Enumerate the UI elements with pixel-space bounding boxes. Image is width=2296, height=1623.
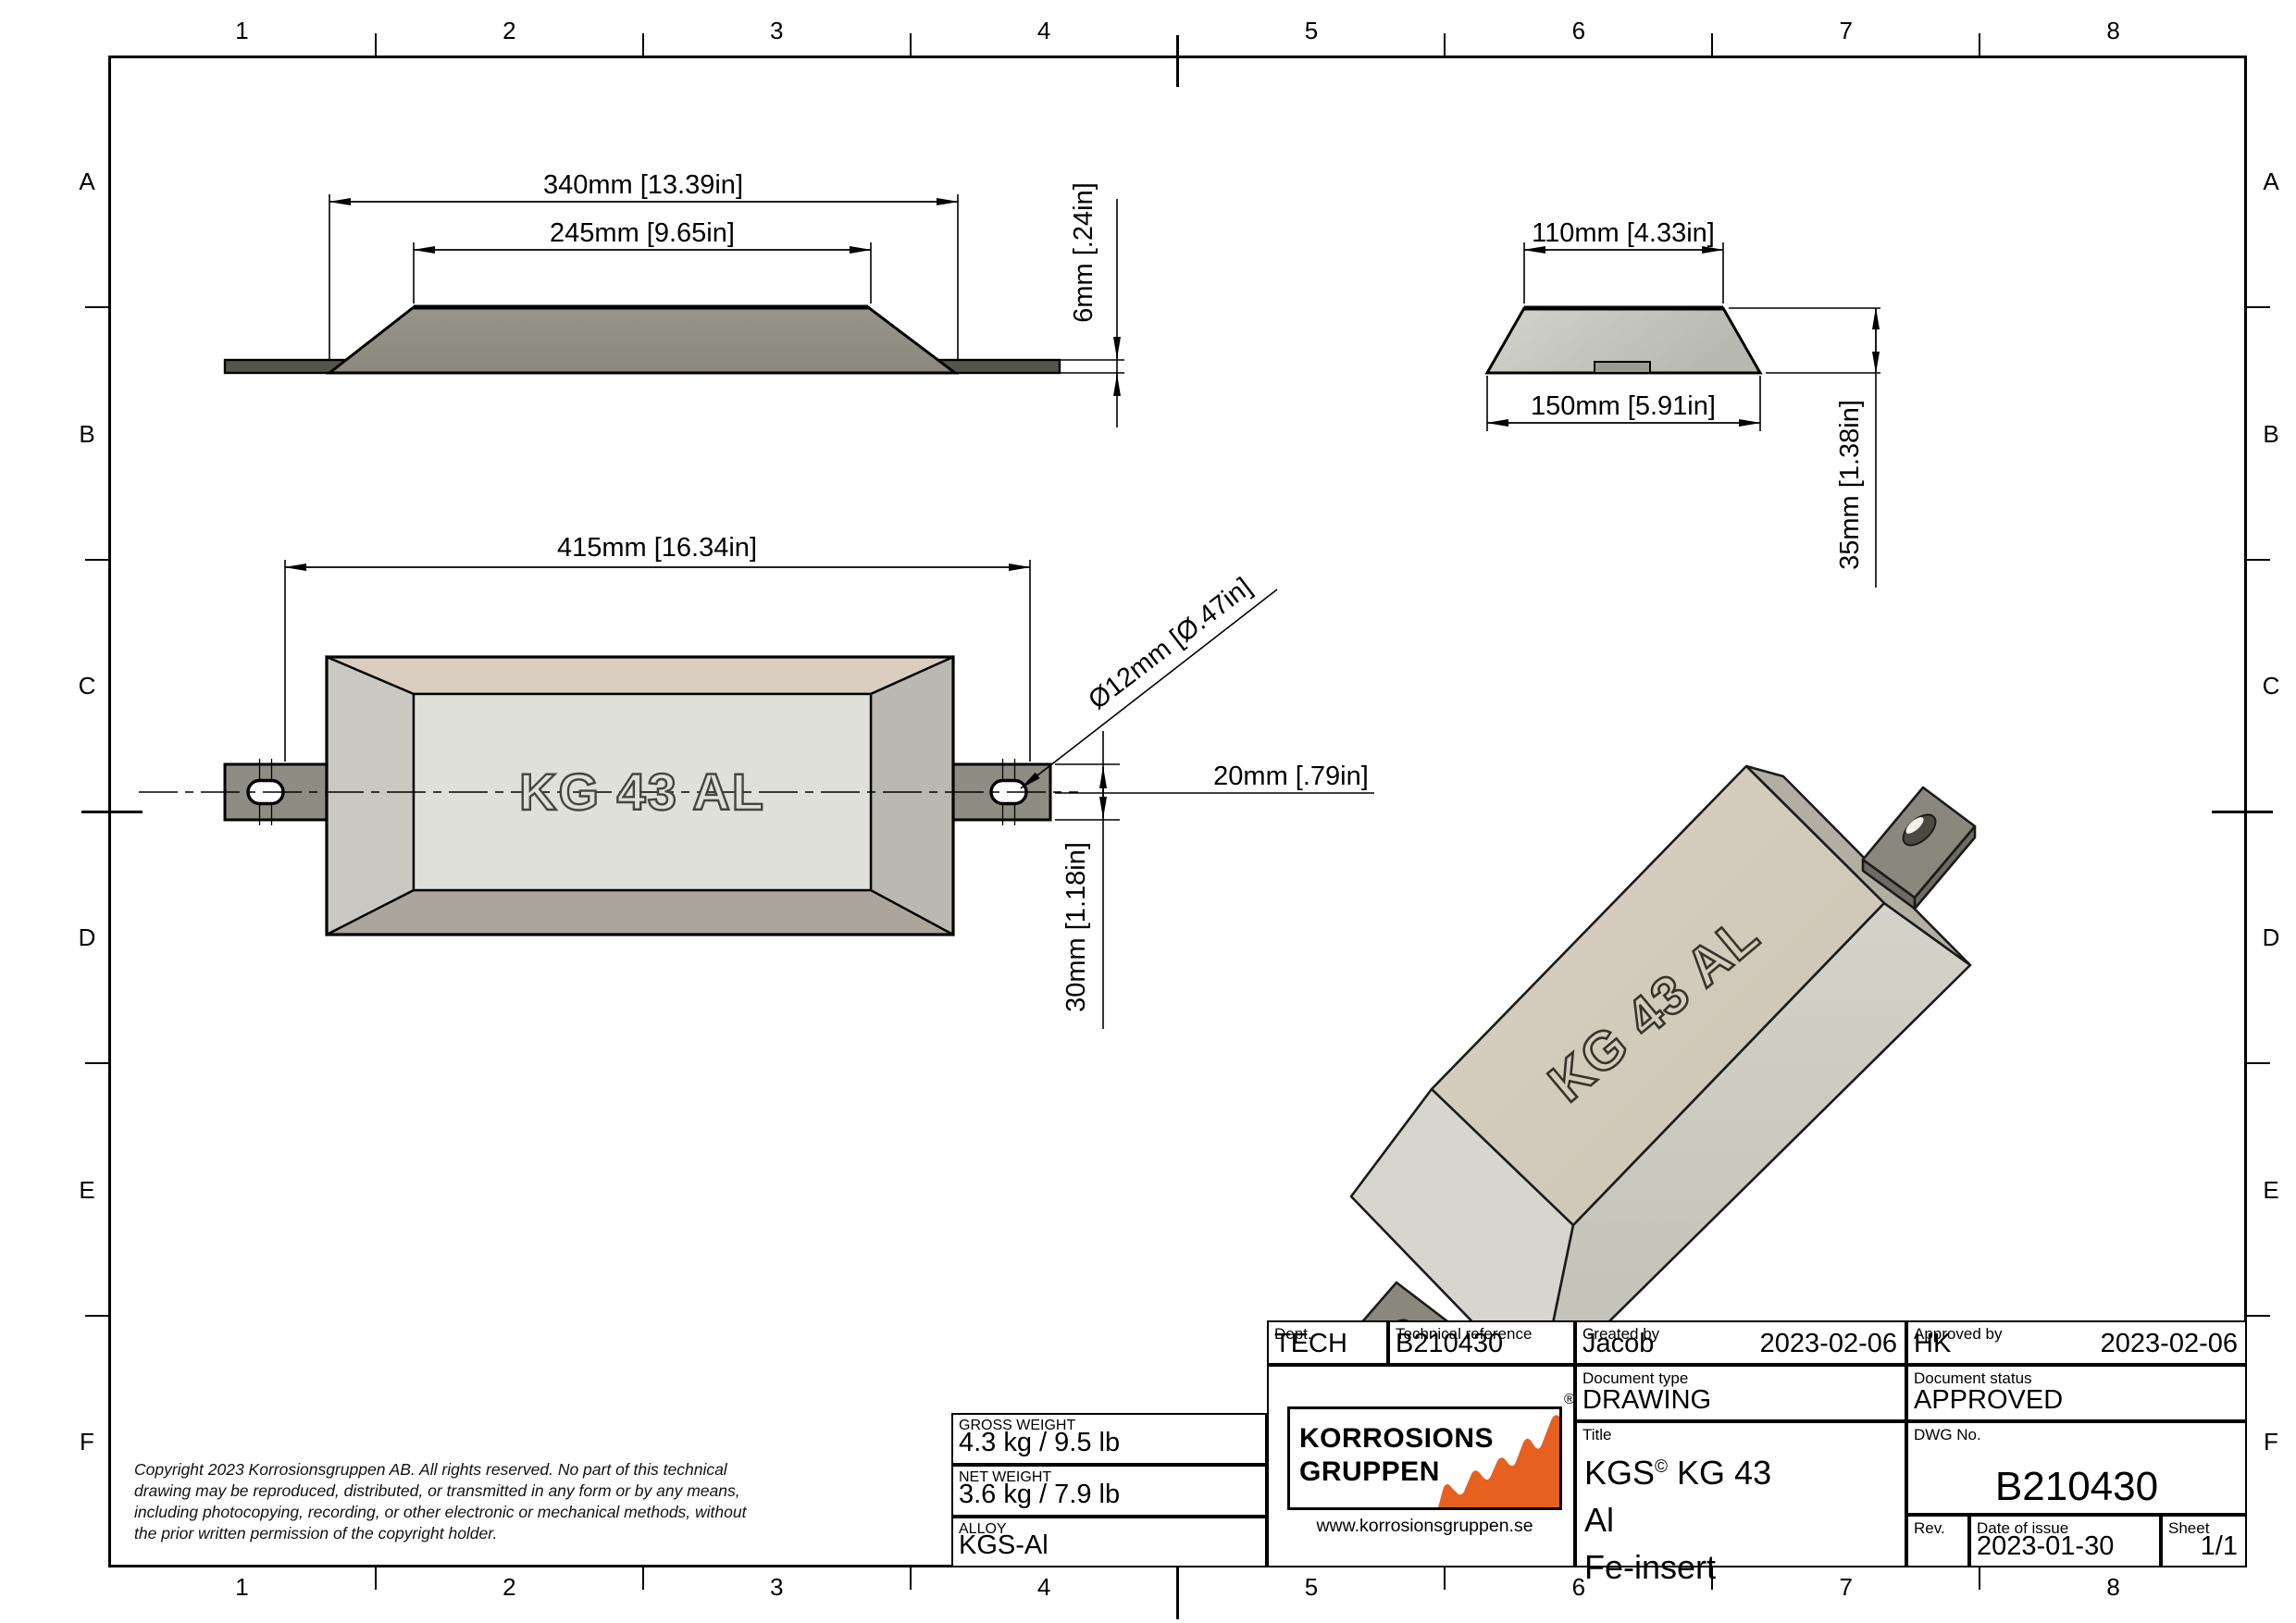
copyright-line: the prior written permission of the copy…	[134, 1523, 763, 1544]
technical-reference-cell: Technical reference B210430	[1388, 1320, 1575, 1365]
logo-wordmark: KORROSIONS GRUPPEN	[1299, 1422, 1494, 1489]
dept-value: TECH	[1274, 1329, 1347, 1359]
created-by-cell: Created by Jacob2023-02-06	[1575, 1320, 1906, 1365]
copyright-notice: Copyright 2023 Korrosionsgruppen AB. All…	[134, 1459, 763, 1544]
technical-reference-value: B210430	[1396, 1329, 1503, 1359]
registered-trademark-icon: ®	[1564, 1392, 1575, 1408]
alloy-value: KGS-Al	[959, 1530, 1049, 1561]
copyright-line: Copyright 2023 Korrosionsgruppen AB. All…	[134, 1459, 763, 1481]
title-part1: KGS	[1584, 1454, 1655, 1492]
title-label: Title	[1582, 1426, 1612, 1444]
created-by-name: Jacob	[1582, 1329, 1654, 1359]
net-weight-value: 3.6 kg / 7.9 lb	[959, 1480, 1120, 1510]
title-part2: KG 43	[1668, 1454, 1771, 1492]
title-line3: Fe-insert	[1584, 1543, 1771, 1591]
copyright-line: drawing may be reproduced, distributed, …	[134, 1481, 763, 1502]
alloy-cell: ALLOY KGS-Al	[951, 1517, 1267, 1567]
company-logo: KORROSIONS GRUPPEN	[1287, 1406, 1562, 1510]
dept-cell: Dept. TECH	[1267, 1320, 1388, 1365]
gross-weight-value: 4.3 kg / 9.5 lb	[959, 1428, 1120, 1458]
sheet-cell: Sheet 1/1	[2161, 1515, 2247, 1567]
net-weight-cell: NET WEIGHT 3.6 kg / 7.9 lb	[951, 1465, 1267, 1517]
dim-top-strap-width: 30mm [1.18in]	[1061, 842, 1091, 1012]
dwg-no-cell: DWG No. B210430	[1906, 1421, 2247, 1515]
logo-url: www.korrosionsgruppen.se	[1287, 1516, 1562, 1537]
dim-side-overall: 340mm [13.39in]	[543, 170, 743, 200]
dwg-no-value: B210430	[1908, 1464, 2245, 1510]
document-type-cell: Document type DRAWING	[1575, 1365, 1906, 1421]
title-line2: Al	[1584, 1496, 1771, 1543]
drawing-sheet: 1122334455667788AABBCCDDEEFF	[0, 0, 2296, 1623]
date-of-issue-cell: Date of issue 2023-01-30	[1969, 1515, 2161, 1567]
dim-end-height: 35mm [1.38in]	[1835, 400, 1865, 570]
dwg-no-label: DWG No.	[1914, 1426, 1981, 1444]
document-status-value: APPROVED	[1914, 1385, 2063, 1416]
dim-top-hole-offset: 20mm [.79in]	[1213, 762, 1369, 791]
approved-by-name: HK	[1914, 1329, 1951, 1359]
rev-cell: Rev.	[1906, 1515, 1969, 1567]
dim-side-top: 245mm [9.65in]	[550, 218, 735, 248]
rev-label: Rev.	[1914, 1519, 1945, 1538]
created-by-date: 2023-02-06	[1760, 1329, 1897, 1359]
top-view-emboss-label: KG 43 AL	[519, 762, 765, 821]
drawing-title: KGS© KG 43 Al Fe-insert	[1584, 1449, 1771, 1591]
approved-by-cell: Approved by HK2023-02-06	[1906, 1320, 2247, 1365]
gross-weight-cell: GROSS WEIGHT 4.3 kg / 9.5 lb	[951, 1413, 1267, 1465]
title-cell: Title KGS© KG 43 Al Fe-insert	[1575, 1421, 1906, 1567]
dim-side-thickness: 6mm [.24in]	[1069, 182, 1098, 323]
document-type-value: DRAWING	[1582, 1385, 1711, 1416]
dim-top-overall: 415mm [16.34in]	[557, 533, 757, 563]
document-status-cell: Document status APPROVED	[1906, 1365, 2247, 1421]
dim-end-top: 110mm [4.33in]	[1532, 218, 1715, 248]
iso-view	[1347, 766, 1975, 1404]
date-of-issue-value: 2023-01-30	[1977, 1531, 2114, 1562]
title-copyright-mark: ©	[1655, 1457, 1668, 1477]
approved-by-date: 2023-02-06	[2101, 1329, 2238, 1359]
dim-top-hole: Ø12mm [Ø.47in]	[1083, 572, 1257, 715]
dim-end-bottom: 150mm [5.91in]	[1531, 391, 1716, 421]
logo-line1: KORROSIONS	[1299, 1422, 1494, 1456]
copyright-line: including photocopying, recording, or ot…	[134, 1502, 763, 1523]
sheet-value: 1/1	[2201, 1531, 2238, 1562]
logo-line2: GRUPPEN	[1299, 1456, 1494, 1489]
